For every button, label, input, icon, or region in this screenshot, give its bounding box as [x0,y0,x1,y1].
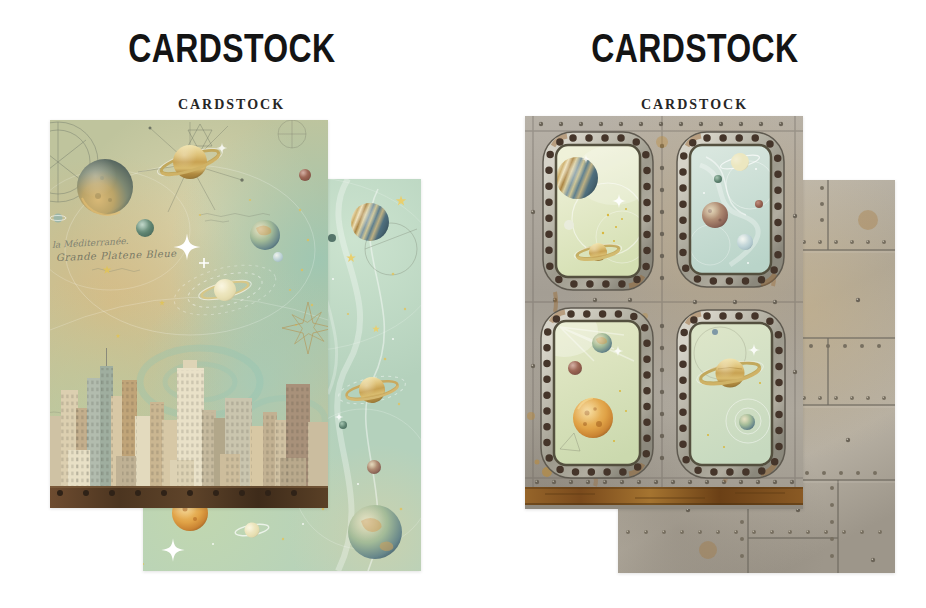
porthole-planets-art [525,116,803,509]
product-title: CARDSTOCK [463,28,926,69]
earth-planet [250,220,280,250]
front-sheet-portholes [525,116,803,509]
small-planet [328,234,336,242]
window-scene-2 [690,145,774,274]
product-section-space-city: CARDSTOCK CARDSTOCK [0,0,463,608]
teal-planet [739,414,755,430]
product-subtitle: CARDSTOCK [463,97,926,113]
rust-band [525,487,803,505]
earth-planet [348,505,402,559]
product-section-portholes: CARDSTOCK CARDSTOCK [463,0,926,608]
jupiter-planet [351,203,389,241]
mauve-planet [702,202,728,228]
small-planet [339,421,347,429]
teal-planet [714,175,722,183]
orange-moon [573,398,613,438]
product-collage: CARDSTOCK CARDSTOCK [0,0,926,608]
porthole-window-3 [530,305,653,478]
pale-blue-planet [737,234,753,250]
pale-planet [273,252,283,262]
maroon-planet [299,169,311,181]
jupiter-planet [556,157,598,199]
porthole-window-1 [543,132,654,290]
porthole-window-4 [677,310,785,478]
product-title: CARDSTOCK [0,28,463,69]
moon-planet [77,159,133,215]
space-city-art: à la Méditerranée. Grande Platene Bleue [50,120,328,508]
product-title-text: CARDSTOCK [128,28,335,69]
front-sheet-space-city: à la Méditerranée. Grande Platene Bleue [50,120,328,508]
small-planet [712,329,718,335]
striped-planet [367,460,381,474]
maroon-planet [568,361,582,375]
porthole-window-2 [677,132,784,287]
product-subtitle: CARDSTOCK [0,97,463,113]
riveted-beam [50,486,328,508]
teal-planet [136,219,154,237]
window-scene-4 [690,323,772,465]
brown-planet [755,200,763,208]
earth-planet [592,333,612,353]
product-title-text: CARDSTOCK [591,28,798,69]
